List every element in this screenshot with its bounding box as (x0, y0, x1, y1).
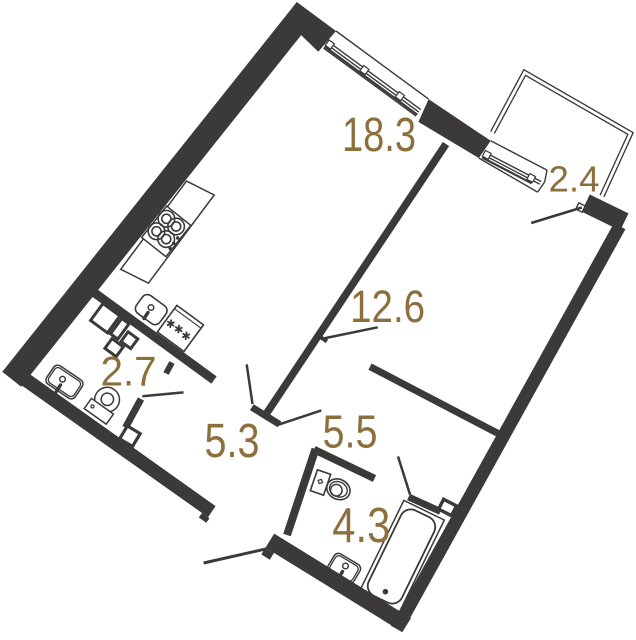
svg-text:2.7: 2.7 (101, 347, 157, 394)
svg-text:2.4: 2.4 (549, 158, 600, 199)
svg-text:18.3: 18.3 (342, 109, 416, 162)
svg-text:5.5: 5.5 (323, 405, 378, 457)
svg-text:5.3: 5.3 (205, 415, 260, 468)
svg-text:12.6: 12.6 (350, 281, 425, 332)
svg-text:4.3: 4.3 (332, 499, 390, 553)
